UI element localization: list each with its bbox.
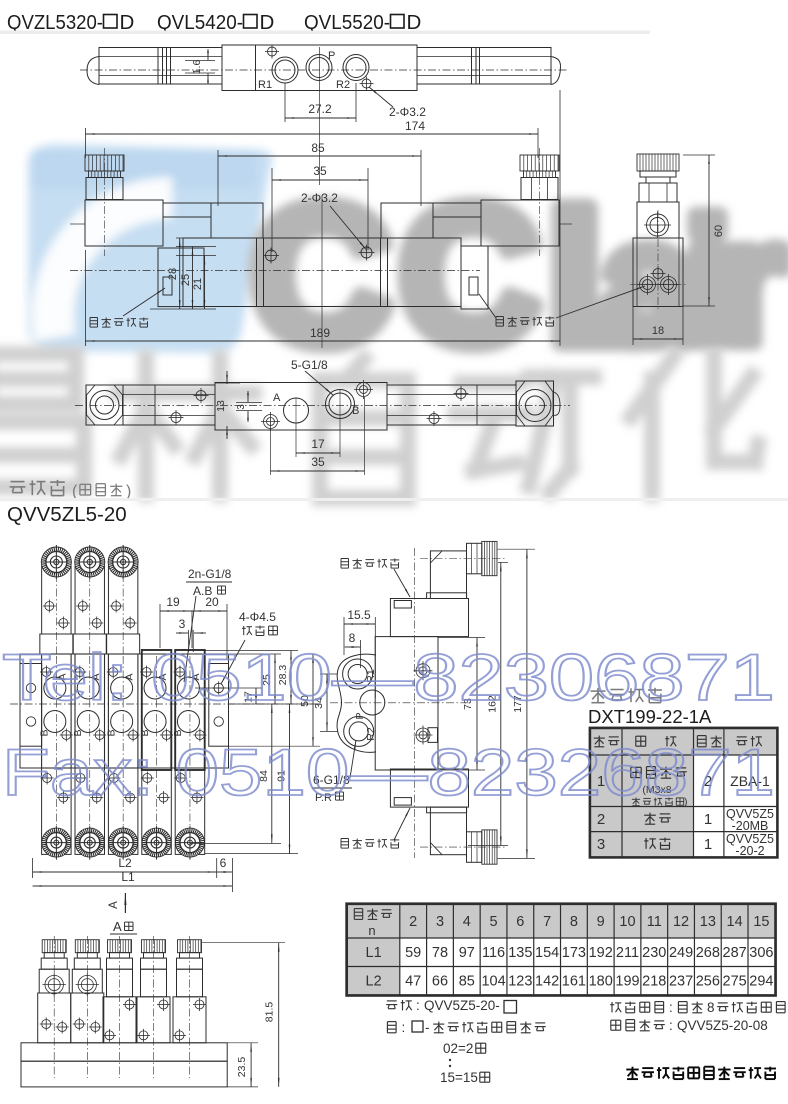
svg-text:27.2: 27.2 [308,102,332,116]
svg-text:L1: L1 [121,870,135,884]
svg-text:(: ( [72,483,78,500]
svg-text:249: 249 [669,945,693,961]
svg-text:161: 161 [562,974,586,990]
svg-text:142: 142 [535,974,559,990]
svg-text:268: 268 [696,945,720,961]
svg-text:A: A [113,919,122,934]
svg-text:): ) [126,483,131,500]
svg-text:14: 14 [727,914,743,930]
svg-text::: : [416,998,420,1013]
svg-text::: : [669,1018,673,1033]
svg-text:-20-2: -20-2 [735,844,764,858]
svg-text:66: 66 [432,974,448,990]
svg-text:21: 21 [192,278,204,290]
svg-text:306: 306 [749,945,773,961]
svg-text:78: 78 [432,945,448,961]
svg-text:A: A [273,392,281,404]
svg-text:85: 85 [311,141,325,155]
svg-text:287: 287 [723,945,747,961]
svg-text:QVV5Z5-20-: QVV5Z5-20- [424,998,500,1013]
svg-text:air: air [600,185,784,380]
svg-text:L2: L2 [366,974,382,990]
svg-text:237: 237 [669,974,693,990]
svg-text:1: 1 [704,811,712,828]
svg-text:199: 199 [615,974,639,990]
svg-text:230: 230 [642,945,666,961]
svg-text::: : [669,1000,673,1015]
svg-text:QVV5ZL5-20: QVV5ZL5-20 [7,503,127,526]
svg-text:15: 15 [753,914,769,930]
svg-text:104: 104 [481,974,505,990]
svg-text:59: 59 [405,945,421,961]
svg-text:n: n [368,923,375,938]
svg-text:Tel: 0510—82306871: Tel: 0510—82306871 [2,640,775,714]
svg-text:275: 275 [723,974,747,990]
svg-text:2: 2 [597,811,605,828]
svg-text:81.5: 81.5 [264,1002,276,1023]
svg-text:15.5: 15.5 [347,608,371,622]
svg-text:5: 5 [490,914,498,930]
svg-text:11: 11 [647,914,662,930]
svg-text:4-Φ4.5: 4-Φ4.5 [239,610,276,624]
svg-text:294: 294 [749,974,773,990]
svg-text:L2: L2 [118,856,132,870]
svg-text:35: 35 [313,164,327,178]
svg-text:97: 97 [459,945,475,961]
svg-text:6: 6 [516,914,524,930]
svg-text:R2: R2 [336,79,350,91]
svg-text:35: 35 [311,455,325,469]
svg-text:174: 174 [405,119,425,133]
svg-text:QVV5Z5-20-08: QVV5Z5-20-08 [677,1018,768,1033]
svg-text:85: 85 [459,974,475,990]
svg-text:211: 211 [616,945,639,961]
svg-text:28: 28 [167,268,179,280]
svg-text:4: 4 [463,914,471,930]
svg-text:10: 10 [619,914,635,930]
svg-text:189: 189 [310,326,330,340]
svg-text:3: 3 [236,404,247,410]
svg-text:2-Φ3.2: 2-Φ3.2 [389,105,426,119]
svg-text:L1: L1 [366,945,382,961]
svg-text:8: 8 [707,1000,715,1015]
svg-text:13: 13 [215,400,227,412]
svg-text:6: 6 [220,856,227,870]
svg-text:20: 20 [205,595,219,609]
svg-text:13: 13 [700,914,716,930]
svg-text:17: 17 [311,437,325,451]
svg-text:154: 154 [535,945,559,961]
svg-text:5-G1/8: 5-G1/8 [291,358,328,372]
svg-text:15=15: 15=15 [440,1070,478,1085]
svg-text:60: 60 [713,225,725,237]
svg-text:135: 135 [508,945,532,961]
svg-text:3: 3 [597,836,605,853]
svg-text::: : [402,1020,406,1035]
svg-text:8: 8 [570,914,578,930]
svg-text:B: B [352,405,359,417]
svg-text:7: 7 [543,914,551,930]
svg-text:-20MB: -20MB [732,819,769,833]
svg-text:1.6: 1.6 [191,60,203,75]
svg-text:2-Φ3.2: 2-Φ3.2 [301,191,338,205]
svg-text:18: 18 [652,325,664,337]
svg-text:3: 3 [179,617,186,631]
svg-text:116: 116 [482,945,505,961]
svg-text:9: 9 [597,914,605,930]
svg-text:25: 25 [180,274,192,286]
svg-text:P: P [328,50,335,62]
svg-text:180: 180 [589,974,613,990]
svg-text:218: 218 [642,974,666,990]
svg-text:47: 47 [405,974,421,990]
svg-text:12: 12 [673,914,689,930]
svg-text:1: 1 [704,836,712,853]
svg-text:02=2: 02=2 [443,1041,473,1056]
svg-text:2n-G1/8: 2n-G1/8 [188,567,232,581]
svg-text:2: 2 [409,914,417,930]
svg-text:123: 123 [508,974,532,990]
svg-text:R1: R1 [258,79,272,91]
svg-text:Fax: 0510—82326871: Fax: 0510—82326871 [2,735,775,809]
svg-text:173: 173 [562,945,586,961]
svg-text:23.5: 23.5 [236,1057,248,1078]
svg-text:A: A [108,901,120,909]
svg-text:256: 256 [696,974,720,990]
svg-text:3: 3 [436,914,444,930]
svg-text:19: 19 [166,595,180,609]
svg-text:-: - [425,1020,430,1035]
svg-text:192: 192 [589,945,613,961]
